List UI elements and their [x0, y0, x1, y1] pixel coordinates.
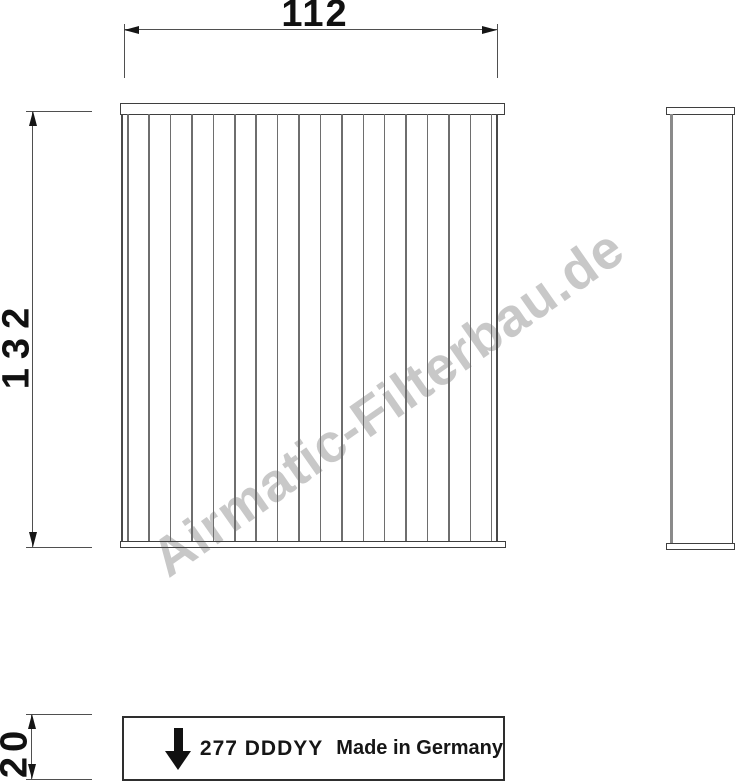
label-box: 277 DDDYY Made in Germany	[122, 716, 505, 781]
pleat-line	[448, 114, 450, 541]
pleat-line	[491, 114, 493, 541]
pleat-line	[148, 114, 150, 541]
pleat-line	[170, 114, 172, 541]
part-number-text: 277 DDDYY	[200, 737, 323, 761]
pleat-line	[277, 114, 279, 541]
arrowhead-up-icon	[29, 111, 37, 126]
front-view-pleated-media	[121, 114, 498, 541]
pleat-line	[427, 114, 429, 541]
arrowhead-up-icon	[28, 714, 36, 729]
dimension-width-label: 112	[265, 0, 365, 36]
pleat-line	[298, 114, 300, 541]
arrowhead-down-icon	[28, 764, 36, 779]
extension-line-depth-top	[26, 714, 92, 715]
pleat-line	[234, 114, 236, 541]
arrowhead-left-icon	[124, 26, 139, 34]
arrowhead-right-icon	[482, 26, 497, 34]
side-view-bottom-frame	[666, 543, 735, 550]
airflow-arrow-stem	[174, 728, 183, 752]
extension-line-width-right	[497, 24, 498, 78]
pleat-line	[384, 114, 386, 541]
extension-line-height-bottom	[26, 547, 92, 548]
pleat-line	[213, 114, 215, 541]
front-view-bottom-frame	[120, 541, 506, 548]
dimension-height-label: 132	[0, 299, 39, 389]
side-view-body	[670, 114, 733, 544]
pleat-line	[470, 114, 472, 541]
pleat-line	[341, 114, 343, 541]
pleat-line	[127, 114, 129, 541]
pleat-line	[363, 114, 365, 541]
airflow-direction-down-icon	[165, 728, 169, 770]
extension-line-depth-bottom	[26, 779, 92, 780]
airflow-arrow-head	[165, 751, 191, 770]
arrowhead-down-icon	[29, 532, 37, 547]
pleat-line	[320, 114, 322, 541]
pleat-line	[255, 114, 257, 541]
pleat-line	[405, 114, 407, 541]
technical-drawing-canvas: Airmatic-Filterbau.de 112 132 20 277 DDD…	[0, 0, 736, 784]
made-in-germany-text: Made in Germany	[336, 737, 503, 760]
pleat-line	[191, 114, 193, 541]
